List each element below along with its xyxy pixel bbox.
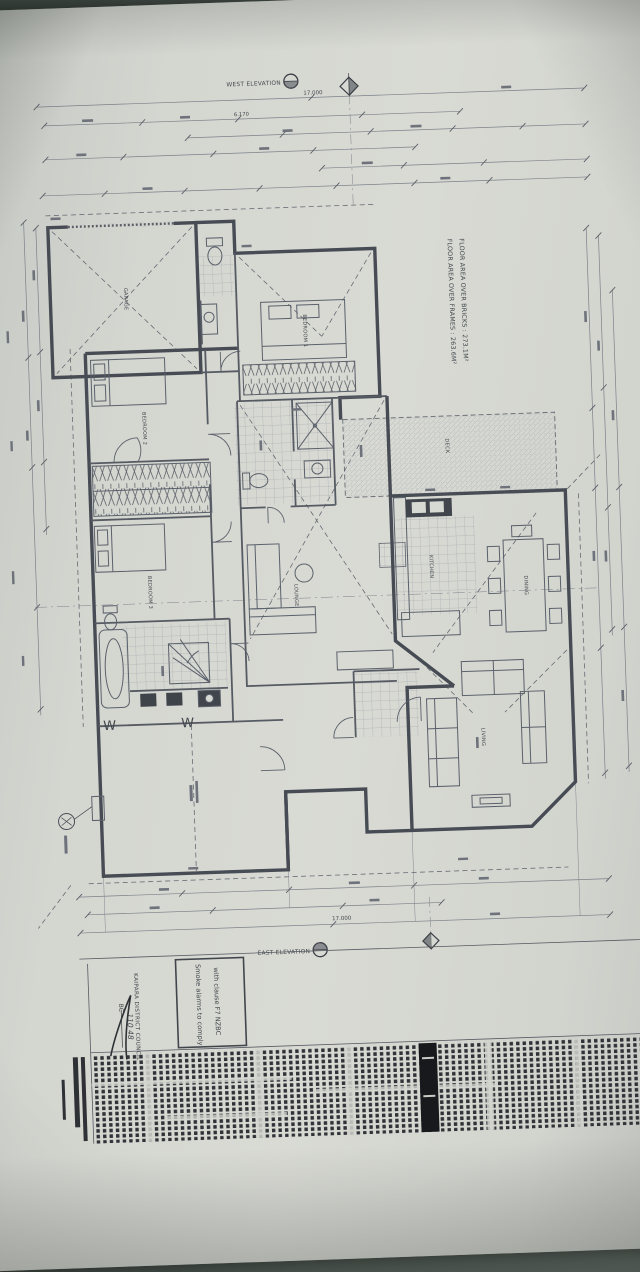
svg-text:Smoke alarms to comply: Smoke alarms to comply bbox=[194, 964, 205, 1046]
bedroom3-label: BEDROOM 3 bbox=[146, 576, 153, 609]
svg-text:WEST ELEVATION: WEST ELEVATION bbox=[226, 81, 281, 89]
bedroom1-label: BEDROOM 1 bbox=[301, 314, 308, 347]
bottom-dimension-lines bbox=[76, 781, 610, 933]
top-dimension-micro-labels bbox=[74, 86, 514, 193]
west-elevation-marker: WEST ELEVATION bbox=[226, 74, 298, 90]
bedroom2-label: BEDROOM 2 bbox=[140, 412, 147, 445]
title-text-column bbox=[61, 1057, 88, 1142]
garage-label: GARAGE bbox=[122, 288, 129, 311]
notes-band bbox=[91, 1035, 640, 1144]
dim-overall-top: 17.000 bbox=[303, 90, 323, 97]
smoke-alarm-stamp: Smoke alarms to comply with clause F7 NZ… bbox=[175, 957, 246, 1047]
top-dimension-ticks bbox=[34, 85, 591, 199]
dining-label: DINING bbox=[522, 575, 529, 595]
furniture bbox=[72, 226, 568, 820]
photo-of-floor-plan: { "elevations": { "west": "WEST ELEVATIO… bbox=[0, 0, 640, 1135]
svg-text:BC: BC bbox=[117, 1004, 124, 1012]
window-mark-left: W bbox=[103, 719, 117, 734]
floor-plan-svg: 17.000 6.170 WEST ELEVATION bbox=[0, 0, 640, 1146]
council-stamp: KAIPARA DISTRICT COUNCIL BC 110 48 bbox=[108, 973, 141, 1062]
dim-segment-top: 6.170 bbox=[234, 112, 249, 119]
dim-overall-bottom: 17.000 bbox=[332, 916, 352, 923]
svg-text:FLOOR AREA OVER FRAMES : 263.6: FLOOR AREA OVER FRAMES : 263.6M² bbox=[445, 239, 456, 365]
top-dimension-lines bbox=[18, 86, 614, 950]
deck-label: DECK bbox=[443, 438, 450, 454]
meter-callout bbox=[58, 807, 94, 854]
deck-area: DECK bbox=[343, 412, 558, 497]
window-mark-right: W bbox=[181, 716, 195, 731]
paper-sheet: 17.000 6.170 WEST ELEVATION bbox=[0, 0, 640, 1272]
drawing-content: 17.000 6.170 WEST ELEVATION bbox=[0, 0, 640, 1146]
living-label: LIVING bbox=[480, 728, 487, 746]
svg-text:FLOOR AREA OVER BRICKS : 273.1: FLOOR AREA OVER BRICKS : 273.1M² bbox=[457, 238, 468, 362]
north-arrow-icon bbox=[340, 73, 359, 96]
kitchen-label: KITCHEN bbox=[427, 555, 434, 579]
lounge-label: LOUNGE bbox=[292, 584, 299, 607]
svg-text:with clause F7 NZBC: with clause F7 NZBC bbox=[212, 967, 222, 1036]
floor-area-note: FLOOR AREA OVER FRAMES : 263.6M² FLOOR A… bbox=[445, 238, 468, 365]
